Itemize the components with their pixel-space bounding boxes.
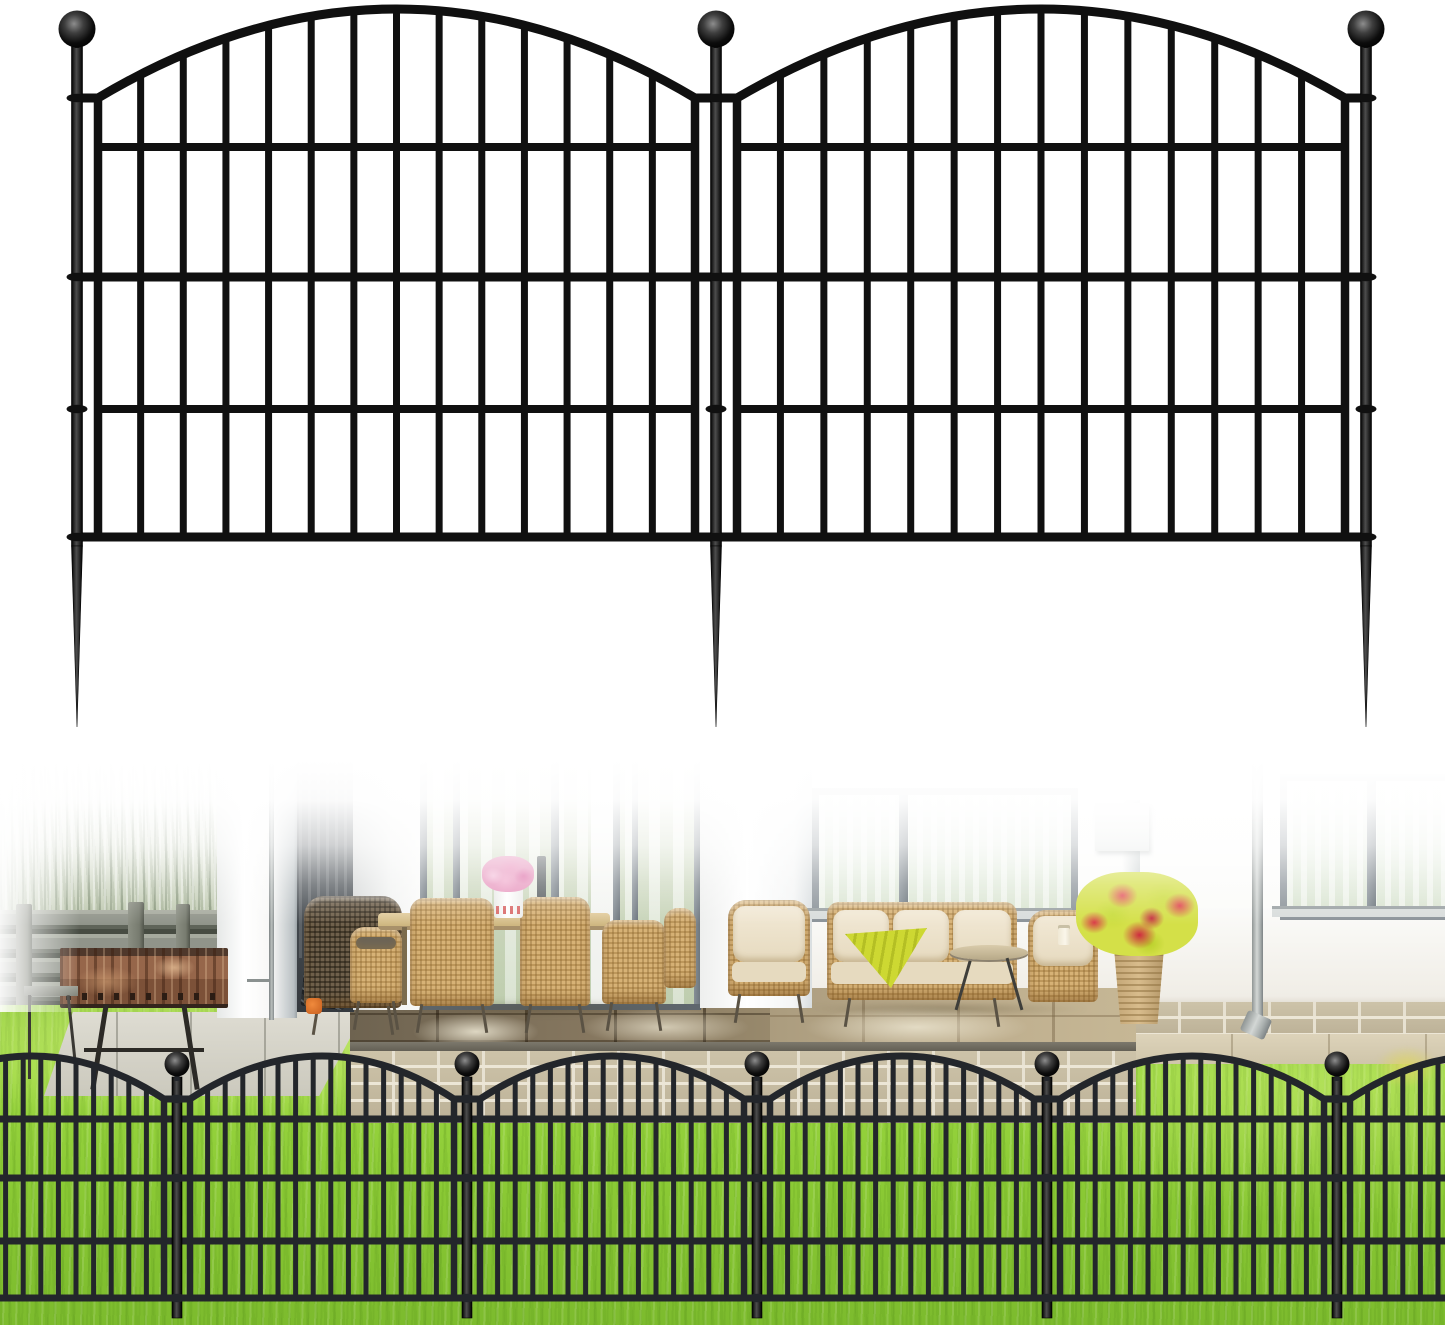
backyard-photo-section: [0, 760, 1445, 1325]
fence-product-image: [0, 0, 1445, 1325]
arched-fence-illustration-graphic: [0, 0, 1445, 760]
installed-fence-graphic: [0, 760, 1445, 1325]
fence-illustration-section: [0, 0, 1445, 760]
